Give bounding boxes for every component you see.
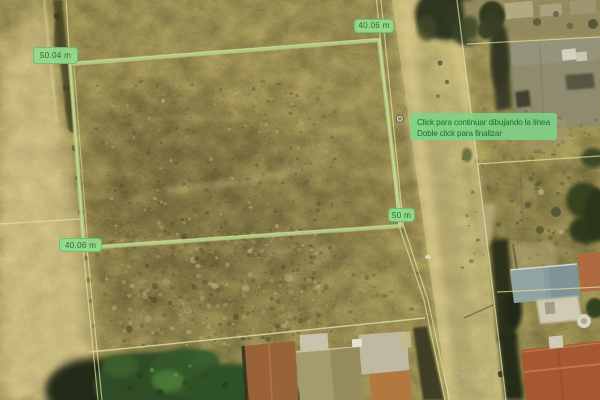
svg-text:Google: Google xyxy=(455,370,488,383)
